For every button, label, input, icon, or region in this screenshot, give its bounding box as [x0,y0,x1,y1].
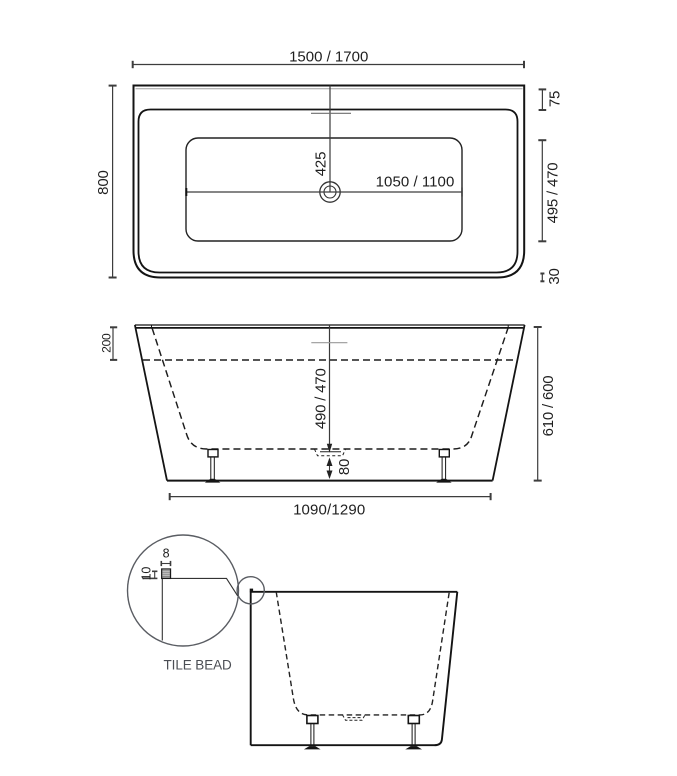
svg-text:80: 80 [336,459,353,475]
svg-text:610 / 600: 610 / 600 [540,376,557,437]
svg-text:1090/1290: 1090/1290 [293,502,365,519]
svg-text:800: 800 [95,170,112,194]
svg-text:425: 425 [312,152,329,176]
svg-text:10: 10 [139,567,153,581]
svg-text:TILE BEAD: TILE BEAD [164,658,232,673]
svg-text:495 / 470: 495 / 470 [544,163,561,224]
svg-text:490 / 470: 490 / 470 [313,368,330,429]
svg-text:1500 / 1700: 1500 / 1700 [289,49,368,66]
svg-text:200: 200 [99,333,113,353]
svg-text:30: 30 [546,268,563,284]
svg-text:1050 / 1100: 1050 / 1100 [376,173,455,190]
svg-text:75: 75 [547,91,564,107]
svg-text:8: 8 [163,547,170,561]
